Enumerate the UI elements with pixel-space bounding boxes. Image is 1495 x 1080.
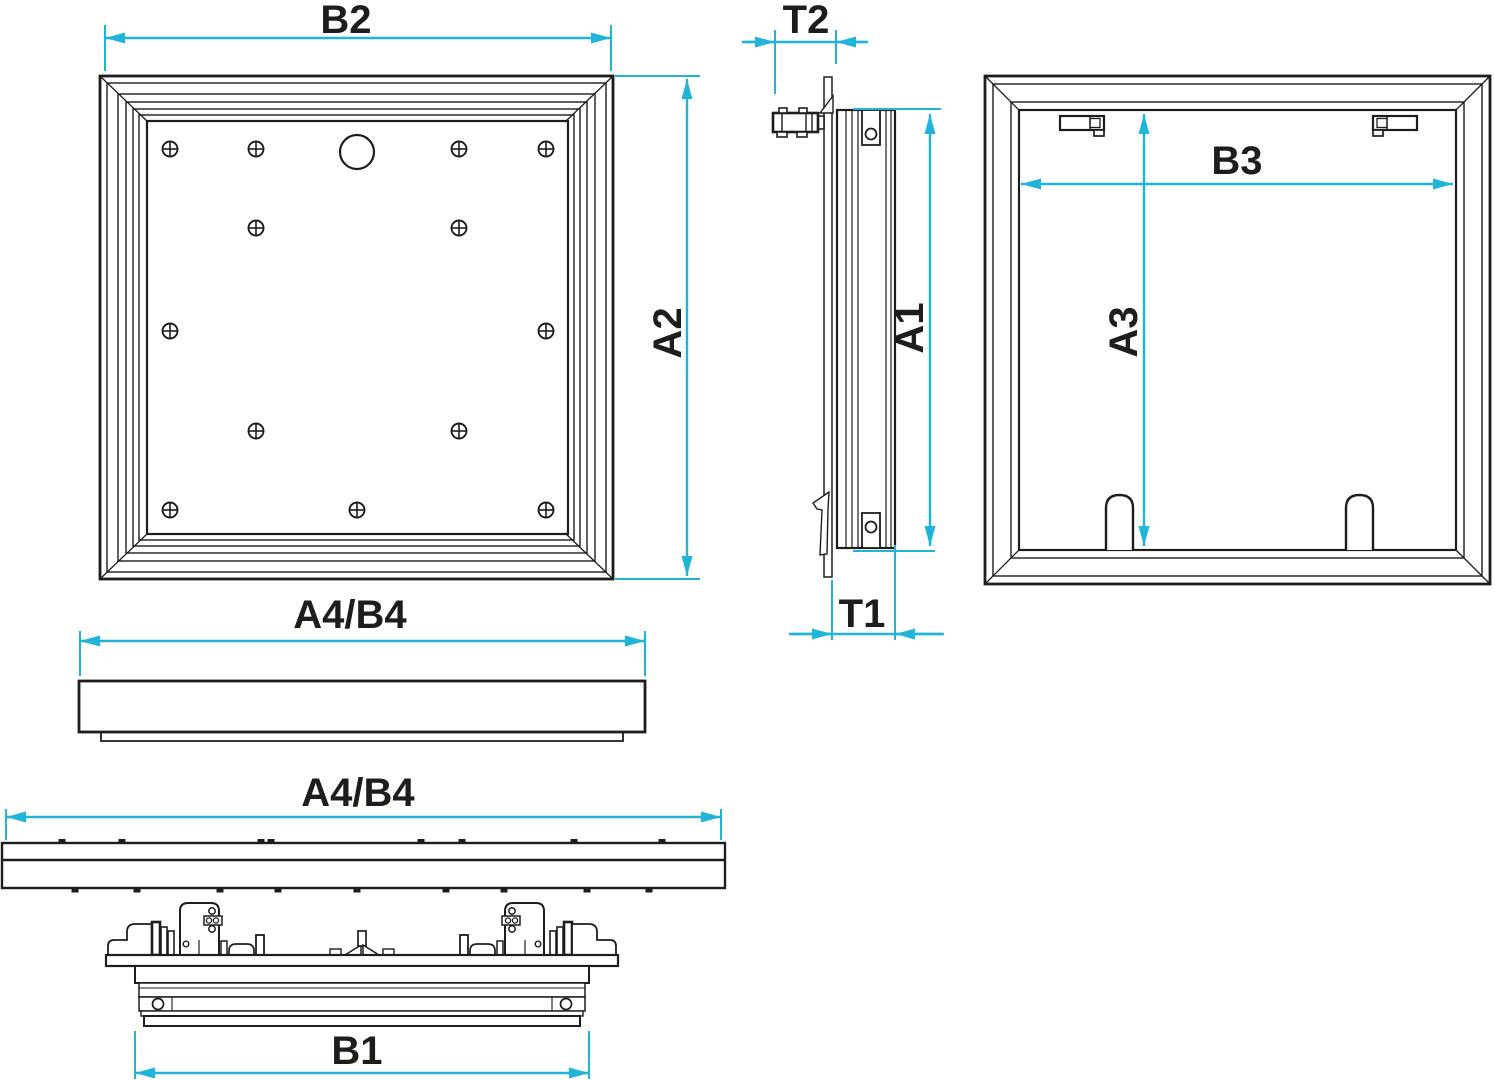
- latch-pin: [161, 927, 167, 955]
- frame-flange: [106, 955, 618, 966]
- screw-icon: [163, 324, 178, 339]
- section-frame-assembly: [106, 903, 618, 1026]
- post: [497, 941, 503, 955]
- mount-hole-bottom: [866, 522, 877, 533]
- dimension-B2: B2: [105, 0, 611, 71]
- spring-hump: [229, 944, 254, 955]
- hardware-left: [108, 903, 264, 955]
- section-cover-bar: [2, 839, 725, 893]
- mount-hole-top: [866, 129, 877, 140]
- hinge-tab-right: [1346, 495, 1373, 550]
- screw-icon: [249, 221, 264, 236]
- screw-icon: [539, 324, 554, 339]
- dimension-label-A1: A1: [888, 302, 932, 353]
- hardware-right: [460, 903, 616, 955]
- latch-foot: [777, 132, 787, 137]
- screw-icon: [452, 221, 467, 236]
- dimension-B3: B3: [1021, 139, 1453, 184]
- screw-icon: [452, 142, 467, 157]
- screw-icon: [249, 142, 264, 157]
- screw-icon: [539, 142, 554, 157]
- dimension-label-A2: A2: [646, 307, 690, 358]
- post: [256, 935, 264, 955]
- drawing-canvas: B2 A2: [0, 0, 1495, 1080]
- frame-rail: [139, 997, 585, 1011]
- cover-profile-view: A4/B4: [79, 593, 645, 741]
- screw-icon: [350, 503, 365, 518]
- screw-icon: [249, 424, 264, 439]
- latch-tab: [799, 108, 807, 113]
- dimension-label-T1: T1: [839, 592, 886, 636]
- dimension-label-T2: T2: [783, 0, 830, 42]
- side-frame-body: [837, 110, 895, 548]
- cover-bar: [2, 843, 725, 888]
- latch-pin: [564, 922, 572, 955]
- dimension-label-B2: B2: [320, 0, 371, 42]
- latch-pin: [557, 927, 563, 955]
- spring-clip: [813, 492, 829, 555]
- dimension-label-A4B4: A4/B4: [293, 593, 407, 637]
- dimension-A4B4-section: A4/B4: [6, 771, 721, 840]
- wing-nut-stem: [358, 931, 366, 946]
- wing-nut-right: [363, 945, 379, 955]
- latch-foot: [1094, 130, 1104, 136]
- frame-base: [144, 1016, 580, 1026]
- frame-section-view: A4/B4: [2, 771, 725, 1079]
- front-frame-line-2: [107, 83, 606, 572]
- post: [460, 935, 468, 955]
- technical-drawing: B2 A2: [0, 0, 1495, 1080]
- screw-icon: [163, 503, 178, 518]
- hardware-center: [330, 931, 394, 955]
- dimension-B1: B1: [135, 1029, 589, 1079]
- dimension-T1: T1: [789, 545, 944, 640]
- rear-latch-right: [1373, 116, 1417, 136]
- latch-tab: [779, 108, 787, 113]
- dimension-A3: A3: [1102, 114, 1146, 546]
- screw-icon: [452, 424, 467, 439]
- dimension-A4B4-profile: A4/B4: [80, 593, 645, 676]
- post: [221, 941, 227, 955]
- front-view: B2 A2: [100, 0, 700, 579]
- rail-hole-left: [153, 999, 164, 1010]
- frame-band: [139, 983, 585, 997]
- latch-gusset: [820, 96, 833, 113]
- front-cable-hole: [340, 135, 374, 169]
- front-frame-line-6: [139, 115, 574, 540]
- frame-web: [135, 966, 589, 983]
- latch-pin: [550, 931, 556, 955]
- rear-latch-left: [1060, 116, 1104, 136]
- screw-icon: [539, 503, 554, 518]
- hinge-tab-left: [1106, 495, 1133, 550]
- dimension-label-A4B4-2: A4/B4: [301, 771, 415, 815]
- front-door-border: [147, 121, 568, 534]
- front-frame-line-3: [118, 94, 595, 561]
- dimension-A2: A2: [615, 76, 700, 579]
- latch-pin: [152, 922, 160, 955]
- screw-icon: [163, 142, 178, 157]
- latch-foot: [797, 132, 807, 137]
- front-frame-line-5: [133, 109, 580, 546]
- rail-hole-right: [561, 999, 572, 1010]
- latch-body: [773, 113, 818, 132]
- dimension-label-B3: B3: [1211, 139, 1262, 183]
- side-view: T2 A1 T1: [742, 0, 944, 640]
- rear-view: B3 A3: [985, 76, 1490, 584]
- latch-cam-left: [108, 924, 152, 955]
- cover-profile-body: [79, 681, 645, 732]
- dimension-T2: T2: [742, 0, 868, 94]
- latch-pin: [168, 931, 174, 955]
- latch-foot: [1373, 130, 1383, 136]
- dimension-label-B1: B1: [331, 1029, 382, 1073]
- latch-cam-right: [572, 924, 616, 955]
- spring-hump: [470, 944, 495, 955]
- dimension-label-A3: A3: [1102, 306, 1146, 357]
